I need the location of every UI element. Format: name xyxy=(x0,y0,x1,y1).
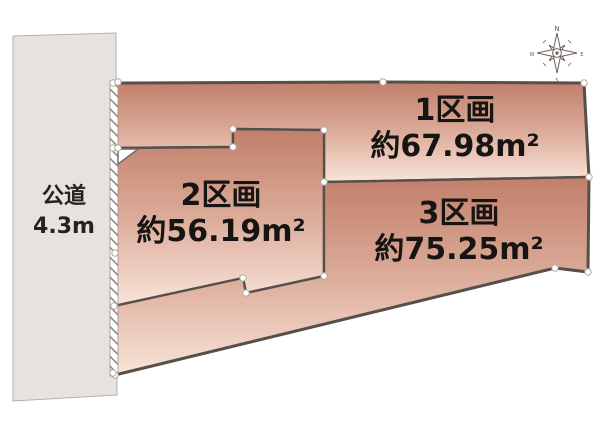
compass-icon: N E S W xyxy=(530,25,584,84)
plot-1-area: 約67.98m² xyxy=(370,129,539,165)
plot-2-name: 2区画 xyxy=(136,178,305,214)
road-name: 公道 xyxy=(33,182,95,212)
plot-3-name: 3区画 xyxy=(374,196,543,232)
plot-3-area: 約75.25m² xyxy=(374,232,543,268)
boundary-hatch xyxy=(110,81,118,376)
compass-east-label: E xyxy=(580,52,583,58)
compass-north-label: N xyxy=(554,25,559,33)
road-label: 公道 4.3m xyxy=(33,182,95,242)
plot-2-area: 約56.19m² xyxy=(136,214,305,250)
compass-west-label: W xyxy=(530,52,535,58)
road-width: 4.3m xyxy=(33,212,95,242)
plot-1-label: 1区画 約67.98m² xyxy=(370,93,539,165)
plot-1-name: 1区画 xyxy=(370,93,539,129)
plot-3-label: 3区画 約75.25m² xyxy=(374,196,543,268)
compass-south-label: S xyxy=(555,78,558,84)
land-plot-diagram: N E S W 1区画 約67.98m² 2区画 約56.19m² 3区画 約7… xyxy=(0,0,600,424)
plot-2-label: 2区画 約56.19m² xyxy=(136,178,305,250)
